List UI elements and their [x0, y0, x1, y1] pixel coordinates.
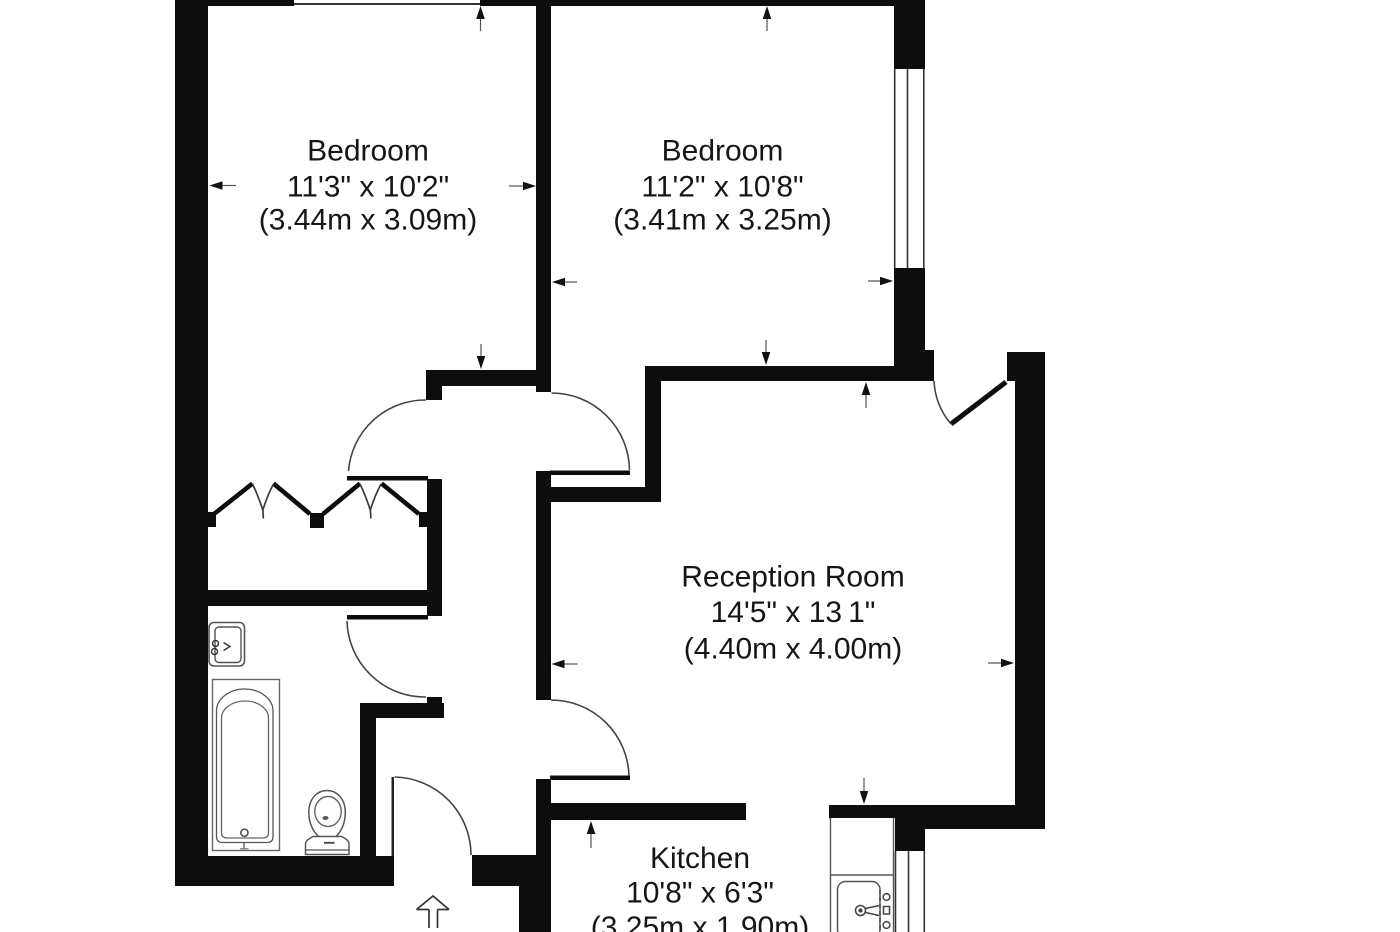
svg-text:(3.44m x 3.09m): (3.44m x 3.09m)	[259, 204, 477, 237]
svg-text:Bedroom: Bedroom	[662, 135, 784, 168]
svg-text:(3.25m x 1.90m): (3.25m x 1.90m)	[591, 911, 809, 932]
svg-text:11'3" x 10'2": 11'3" x 10'2"	[287, 171, 449, 204]
svg-text:(3.41m x 3.25m): (3.41m x 3.25m)	[613, 204, 831, 237]
svg-text:10'8" x 6'3": 10'8" x 6'3"	[626, 877, 774, 910]
svg-text:Bedroom: Bedroom	[307, 135, 429, 168]
svg-text:Kitchen: Kitchen	[650, 842, 750, 875]
svg-text:14'5" x 13 1": 14'5" x 13 1"	[711, 596, 876, 629]
svg-text:Reception Room: Reception Room	[681, 561, 904, 594]
svg-text:(4.40m x 4.00m): (4.40m x 4.00m)	[684, 633, 902, 666]
svg-text:11'2" x 10'8": 11'2" x 10'8"	[641, 171, 803, 204]
